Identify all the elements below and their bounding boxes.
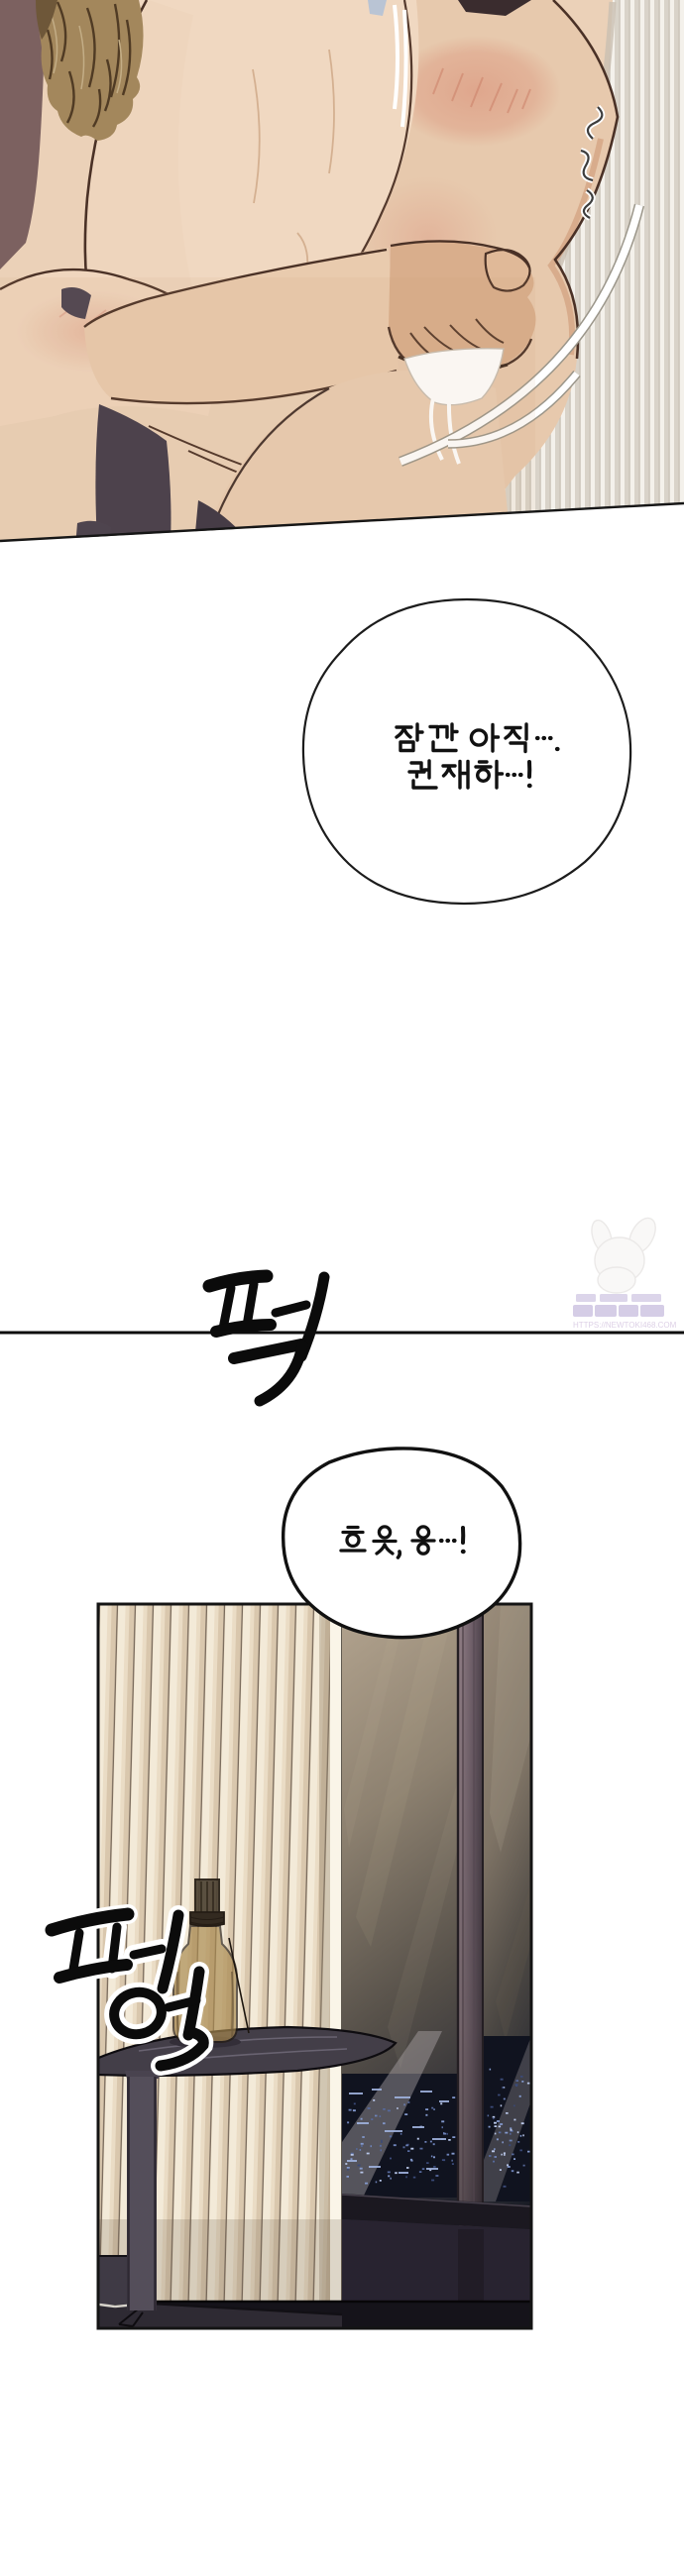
svg-text:HTTPS://NEWTOKI468.COM: HTTPS://NEWTOKI468.COM (573, 1321, 677, 1330)
